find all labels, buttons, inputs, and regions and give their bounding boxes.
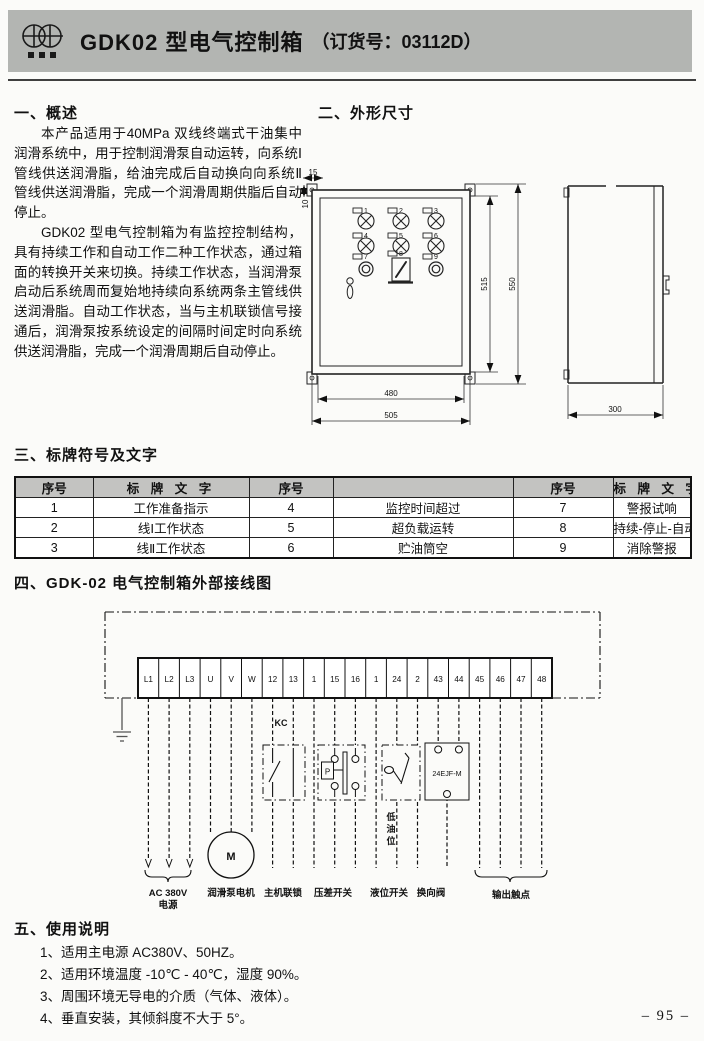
cell: 8: [513, 518, 613, 538]
side-handle: [663, 276, 669, 294]
overview-paragraph-2: GDK02 型电气控制箱为有监控控制结构，具有持续工作和自动工作二种工作状态，通…: [14, 223, 302, 362]
table-row: 3 线Ⅱ工作状态 6 贮油筒空 9 消除警报: [15, 538, 691, 559]
dim-outer-width: 505: [384, 411, 398, 420]
label-level-switch: 液位开关: [370, 887, 409, 899]
section5-heading: 五、使用说明: [14, 918, 110, 939]
cell: 超负载运转: [333, 518, 513, 538]
order-number: （订货号：03112D）: [311, 28, 481, 54]
panel-number: 3: [434, 208, 438, 215]
col-header: 序号: [15, 477, 93, 498]
terminal-label: 44: [454, 675, 464, 684]
nameplate-table: 序号 标 牌 文 字 序号 序号 标 牌 文 字 1 工作准备指示 4 监控时间…: [14, 476, 692, 559]
cell: 9: [513, 538, 613, 559]
pressure-label: P: [325, 768, 330, 777]
terminal-label: 45: [475, 675, 485, 684]
terminal-label: 43: [434, 675, 444, 684]
label-reversing-valve: 换向阀: [417, 887, 446, 899]
dim-inner-width: 480: [384, 389, 398, 398]
pump-motor: M: [208, 832, 254, 878]
label-ac-power-2: 电源: [158, 899, 178, 911]
terminal-label: 48: [537, 675, 547, 684]
terminal-strip: L1 L2 L3 U V W 12 13 1 15 16 1 24 2 43 4…: [138, 658, 552, 698]
cell: 线Ⅱ工作状态: [93, 538, 249, 559]
motor-label: M: [226, 851, 235, 863]
terminal-label: 15: [330, 675, 340, 684]
col-header: 序号: [249, 477, 333, 498]
outline-dimension-drawing: 1 2 3 4 5 6 7 8 9: [300, 148, 704, 440]
terminal-label: U: [208, 675, 214, 684]
label-host-interlock: 主机联锁: [264, 887, 303, 899]
cell: 线Ⅰ工作状态: [93, 518, 249, 538]
panel-number: 5: [399, 233, 403, 240]
dim-tab-width: 15: [309, 168, 318, 177]
usage-item-3: 3、周围环境无导电的介质（气体、液体）。: [40, 986, 297, 1008]
terminal-label: 47: [516, 675, 526, 684]
interlock-kc-box: KC: [263, 718, 305, 800]
panel-number: 4: [364, 233, 368, 240]
terminal-label: L2: [165, 675, 175, 684]
reversing-valve-box: 24EJF-M: [425, 743, 469, 800]
ground-symbol: [113, 698, 131, 741]
label-pump-motor: 润滑泵电机: [207, 887, 255, 899]
label-ac-power: AC 380V: [149, 888, 188, 899]
level-switch-box: [382, 745, 420, 800]
dim-outer-height: 550: [508, 277, 517, 291]
cell: 4: [249, 498, 333, 518]
cell: 贮油筒空: [333, 538, 513, 559]
terminal-label: 24: [392, 675, 402, 684]
terminal-label: V: [228, 675, 234, 684]
label-output-contacts: 输出触点: [492, 889, 531, 901]
panel-number: 7: [364, 254, 368, 261]
cell: 3: [15, 538, 93, 559]
panel-number: 9: [434, 254, 438, 261]
catalog-page: GDK02 型电气控制箱 （订货号：03112D） 一、概述 本产品适用于40M…: [0, 0, 704, 1041]
cell: 5: [249, 518, 333, 538]
terminal-label: 1: [312, 675, 317, 684]
valve-label: 24EJF-M: [432, 769, 461, 778]
header-bar: GDK02 型电气控制箱 （订货号：03112D）: [8, 10, 692, 72]
terminal-label: 2: [415, 675, 420, 684]
section4-heading: 四、GDK-02 电气控制箱外部接线图: [14, 572, 272, 593]
panel-number: 6: [434, 233, 438, 240]
overview-paragraph-1: 本产品适用于40MPa 双线终端式干油集中润滑系统中，用于控制润滑泵自动运转，向…: [14, 124, 302, 223]
cell: 工作准备指示: [93, 498, 249, 518]
low-oil-level-label: 低 油 位: [385, 811, 395, 846]
overview-text: 本产品适用于40MPa 双线终端式干油集中润滑系统中，用于控制润滑泵自动运转，向…: [14, 124, 302, 362]
panel-number: 8: [399, 251, 403, 258]
usage-item-2: 2、适用环境温度 -10℃ - 40℃，湿度 90%。: [40, 964, 307, 986]
cell: 监控时间超过: [333, 498, 513, 518]
terminal-label: 16: [351, 675, 361, 684]
col-header: 标 牌 文 字: [613, 477, 691, 498]
label-pressure-switch: 压差开关: [314, 887, 353, 899]
terminal-label: 12: [268, 675, 278, 684]
pressure-switch-box: P: [318, 745, 365, 800]
terminal-label: L3: [185, 675, 195, 684]
cell: 1: [15, 498, 93, 518]
dim-inner-height: 515: [480, 277, 489, 291]
cell: 警报试响: [613, 498, 691, 518]
power-wire-arrows: [145, 859, 192, 867]
col-header: 标 牌 文 字: [93, 477, 249, 498]
terminal-label: W: [248, 675, 256, 684]
panel-number: 2: [399, 208, 403, 215]
panel-number: 1: [364, 208, 368, 215]
cell: 6: [249, 538, 333, 559]
front-view: [307, 184, 475, 384]
cell: 持续-停止-自动: [613, 518, 691, 538]
usage-item-1: 1、适用主电源 AC380V、50HZ。: [40, 942, 243, 964]
kc-label: KC: [275, 718, 288, 728]
table-row: 2 线Ⅰ工作状态 5 超负载运转 8 持续-停止-自动: [15, 518, 691, 538]
page-number: – 95 –: [642, 1008, 690, 1025]
col-header: 序号: [513, 477, 613, 498]
side-view: [564, 186, 669, 383]
table-row: 1 工作准备指示 4 监控时间超过 7 警报试响: [15, 498, 691, 518]
logo-caption-marks: [28, 52, 56, 58]
svg-text:位: 位: [386, 835, 395, 846]
group-braces: [145, 870, 547, 882]
svg-text:低: 低: [385, 811, 395, 822]
dim-depth: 300: [608, 405, 622, 414]
section3-heading: 三、标牌符号及文字: [14, 444, 158, 465]
section1-heading: 一、概述: [14, 102, 78, 123]
usage-item-4: 4、垂直安装，其倾斜度不大于 5°。: [40, 1008, 253, 1030]
cell: 消除警报: [613, 538, 691, 559]
external-wiring-diagram: L1 L2 L3 U V W 12 13 1 15 16 1 24 2 43 4…: [95, 598, 660, 920]
terminal-label: 13: [289, 675, 299, 684]
terminal-label: 1: [374, 675, 379, 684]
cell: 7: [513, 498, 613, 518]
table-header-row: 序号 标 牌 文 字 序号 序号 标 牌 文 字: [15, 477, 691, 498]
terminal-label: L1: [144, 675, 154, 684]
terminal-label: 46: [496, 675, 506, 684]
section2-heading: 二、外形尺寸: [318, 102, 414, 123]
page-title: GDK02 型电气控制箱: [80, 25, 303, 57]
cell: 2: [15, 518, 93, 538]
dim-tab-height: 10: [301, 199, 310, 208]
svg-text:油: 油: [386, 823, 395, 834]
header-rule: [8, 79, 696, 81]
brand-logo-icon: [20, 19, 66, 63]
col-header: [333, 477, 513, 498]
